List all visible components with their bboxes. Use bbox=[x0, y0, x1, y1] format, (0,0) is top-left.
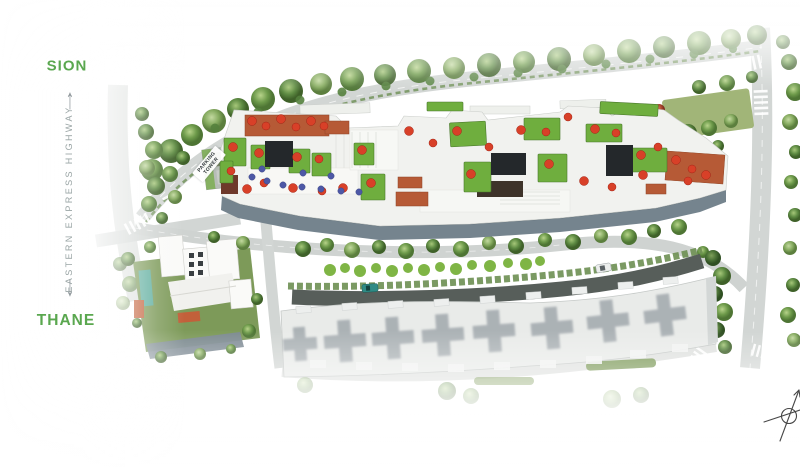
label-thane: THANE bbox=[37, 312, 95, 330]
car bbox=[595, 263, 611, 273]
highway-label: EASTERN EXPRESS HIGHWAY bbox=[64, 105, 74, 292]
south-arrow-icon: ↓ bbox=[66, 272, 75, 301]
main-residential-building bbox=[220, 99, 728, 240]
site-plan-rendering bbox=[0, 0, 800, 468]
car bbox=[362, 283, 379, 292]
site-plan-page: SION ↑ EASTERN EXPRESS HIGHWAY ↓ THANE P… bbox=[0, 0, 800, 468]
left-fade bbox=[0, 0, 185, 468]
label-sion: SION bbox=[47, 58, 88, 75]
